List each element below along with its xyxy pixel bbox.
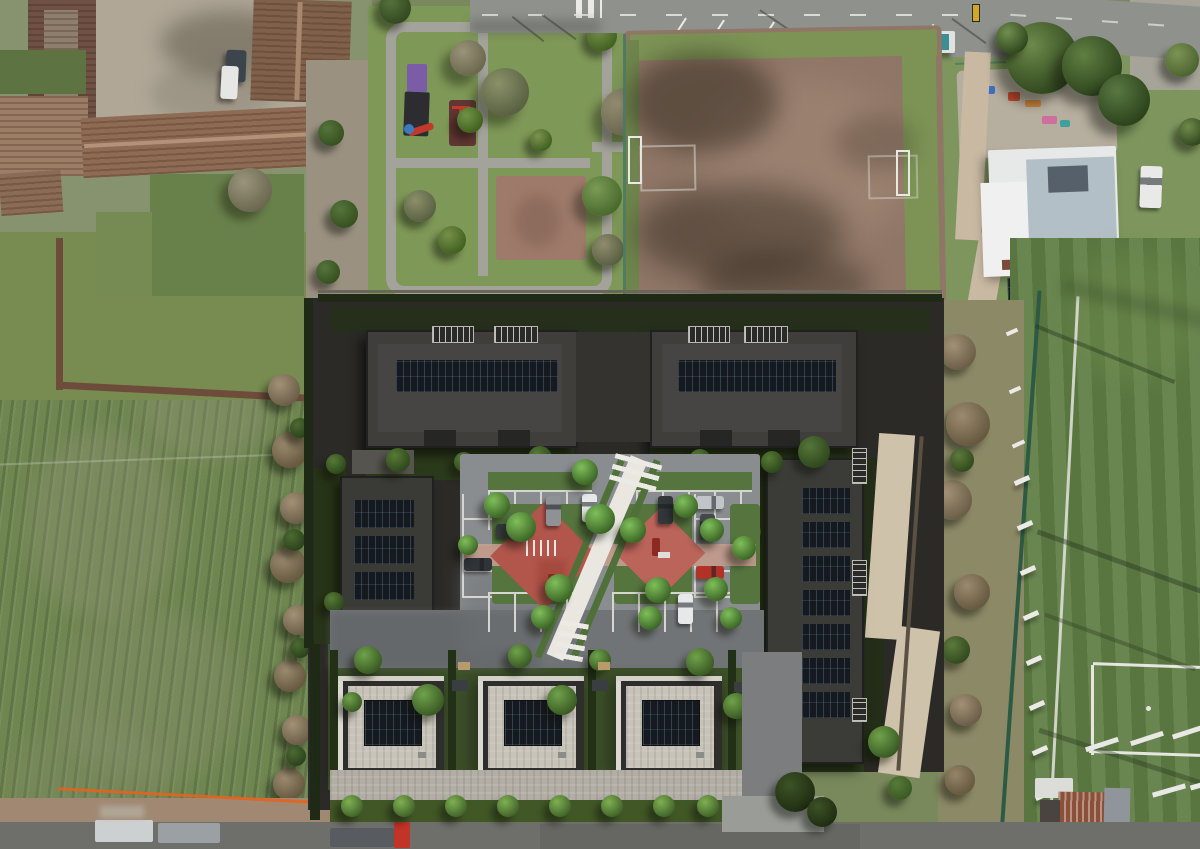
south-walkway — [330, 770, 748, 802]
site-hedge-top — [318, 294, 942, 302]
site-garden-top-strip — [330, 306, 930, 332]
court-tree — [732, 536, 756, 560]
block-east-solar — [802, 488, 850, 514]
garden-tree — [508, 644, 532, 668]
car-dark — [658, 496, 673, 524]
dirt-tree-shadow — [628, 52, 778, 152]
court-tree — [506, 512, 536, 542]
verge-tree — [393, 795, 415, 817]
dirt-fence-left — [623, 34, 626, 310]
container-gray — [158, 823, 220, 843]
verge-tree — [445, 795, 467, 817]
site-hedge-left-south — [310, 640, 320, 820]
garden-tree — [547, 685, 577, 715]
east-path-tree — [888, 776, 912, 800]
play-equip-red — [1008, 92, 1020, 101]
roadside-dark-tree — [807, 797, 837, 827]
park-tree — [404, 190, 436, 222]
farm-garden — [150, 174, 304, 296]
park-tree — [592, 234, 624, 266]
park-tree — [438, 226, 466, 254]
court-tree — [620, 517, 646, 543]
court-tree — [645, 577, 671, 603]
court-tree — [458, 535, 478, 555]
park-tree — [481, 68, 529, 116]
hedgerow-bush — [268, 374, 300, 406]
farm-lane-hedge — [330, 200, 358, 228]
hedgerow-bush — [274, 660, 306, 692]
sports-building-vent — [1048, 165, 1089, 192]
hedgerow-bush — [273, 768, 305, 800]
block-west-solar — [354, 500, 414, 528]
garden-hedge — [448, 650, 456, 786]
ne-tree — [996, 22, 1028, 54]
house-vent — [418, 752, 426, 758]
house-parapet — [616, 676, 722, 681]
penalty-spot — [1146, 706, 1151, 711]
patio-set-tan — [458, 662, 470, 670]
block1-skylight — [494, 326, 538, 343]
truck-cab-red — [394, 822, 410, 848]
site-hedge-left — [304, 298, 313, 648]
goal-box-left — [640, 145, 697, 192]
block1-skylight — [432, 326, 474, 343]
house-solar — [642, 700, 700, 746]
rough-bush — [945, 765, 975, 795]
play-mat-purple — [407, 64, 427, 92]
block2-entry — [700, 430, 732, 446]
penalty-box-left — [1091, 665, 1094, 755]
car-silver — [696, 496, 724, 509]
car-gray — [546, 496, 561, 526]
verge-tree — [653, 795, 675, 817]
block-west-solar — [354, 536, 414, 564]
court-tree — [484, 492, 510, 518]
garden-tree — [342, 692, 362, 712]
block-east-solar — [802, 522, 850, 548]
court-tree — [720, 607, 742, 629]
ne-tree — [1098, 74, 1150, 126]
house-parapet — [478, 676, 483, 776]
patio-set — [592, 680, 608, 691]
park-tree — [582, 176, 622, 216]
house-parapet — [478, 676, 584, 681]
verge-tree — [697, 795, 719, 817]
play-equip-orange — [1025, 100, 1041, 107]
court-tree — [674, 494, 698, 518]
ne-van — [1139, 166, 1162, 209]
play-equip-pink — [1042, 116, 1057, 124]
farm-lane-hedge — [316, 260, 340, 284]
ne-tree — [1178, 118, 1200, 146]
play-seesaw-end — [404, 124, 414, 134]
car-dark — [464, 558, 492, 571]
garden-tree — [354, 646, 382, 674]
garden-wall-vert — [56, 238, 63, 390]
garden-tree — [386, 448, 410, 472]
court-tree — [700, 518, 724, 542]
park-tree — [530, 129, 552, 151]
block-east-skylight — [852, 560, 867, 596]
patio-set — [452, 680, 468, 691]
block-east-skylight — [852, 448, 867, 484]
garden-tree — [326, 454, 346, 474]
verge-tree — [549, 795, 571, 817]
farm-roof-left-2 — [0, 170, 63, 216]
hedgerow-green — [286, 746, 306, 766]
court-tree — [572, 459, 598, 485]
farm-tree — [228, 168, 272, 212]
garden-tree — [761, 451, 783, 473]
blocks-gap-lane — [576, 332, 650, 442]
block-east-solar — [802, 624, 850, 650]
ne-tree — [1165, 43, 1199, 77]
garden-hedge — [330, 650, 338, 790]
block2-skylight — [744, 326, 788, 343]
patio-set-tan — [598, 662, 610, 670]
block-east-solar — [802, 692, 850, 718]
farm-van — [220, 66, 239, 100]
garden-hedge — [588, 650, 596, 786]
farm-lane-hedge — [318, 120, 344, 146]
play-equip-bench — [658, 552, 670, 558]
house-vent — [558, 752, 566, 758]
farm-garden — [96, 212, 152, 296]
court-tree — [638, 606, 662, 630]
farm-roof-left — [0, 96, 88, 176]
block1-entry — [424, 430, 456, 446]
hedgerow-bush — [270, 547, 306, 583]
rough-green-bush — [942, 636, 970, 664]
climbing-frame — [526, 540, 556, 556]
park-path-cross-h — [388, 158, 590, 168]
block2-solar-array — [678, 360, 836, 392]
park-tree — [457, 107, 483, 133]
house-parapet — [338, 676, 444, 681]
garden-tree — [412, 684, 444, 716]
park-tree — [450, 40, 486, 76]
rough-bush — [954, 574, 990, 610]
rough-bush — [946, 402, 990, 446]
goal-box-right — [868, 155, 919, 200]
court-tree — [704, 577, 728, 601]
rough-green-bush — [950, 448, 974, 472]
play-equip-teal — [1060, 120, 1070, 127]
rough-bush — [950, 694, 982, 726]
house-parapet — [616, 676, 621, 776]
garden-tree — [798, 436, 830, 468]
block2-skylight — [688, 326, 730, 343]
hedgerow-green — [283, 529, 305, 551]
east-path-tree — [868, 726, 900, 758]
block-west-solar — [354, 572, 414, 600]
court-tree — [585, 504, 615, 534]
rough-bush — [940, 334, 976, 370]
house-vent — [696, 752, 704, 758]
court-tree — [545, 574, 573, 602]
site-wall-top — [318, 290, 942, 293]
container-white — [95, 820, 153, 842]
block-east-skylight — [852, 698, 867, 722]
park-bocce-shade — [515, 195, 560, 247]
garden-tree — [324, 592, 344, 612]
aerial-photo — [0, 0, 1200, 849]
court-tree — [531, 605, 555, 629]
block-east-solar — [802, 556, 850, 582]
block1-entry — [498, 430, 530, 446]
traffic-pole — [972, 4, 980, 22]
block-east-solar — [802, 658, 850, 684]
crosswalk-top — [576, 0, 602, 18]
block1-solar-array — [396, 360, 558, 392]
block2-entry — [768, 430, 800, 446]
car-white — [678, 594, 693, 624]
road-tree-shadow — [470, 20, 600, 33]
block-east-solar — [802, 590, 850, 616]
garden-tree — [686, 648, 714, 676]
farm-garden — [0, 50, 86, 94]
verge-tree — [341, 795, 363, 817]
verge-tree — [497, 795, 519, 817]
container-dark — [330, 828, 394, 847]
house-parapet — [338, 676, 343, 776]
debris-pile — [100, 806, 144, 818]
road-centerline — [482, 14, 980, 16]
verge-tree — [601, 795, 623, 817]
